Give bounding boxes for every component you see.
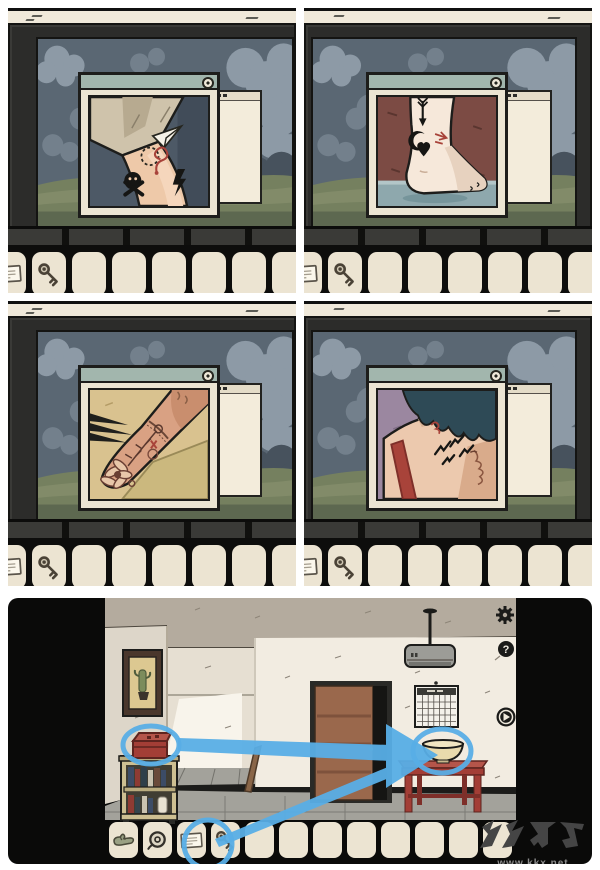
stacked-window[interactable] — [502, 383, 552, 497]
walkthrough-panel-2 — [304, 8, 592, 293]
window-close-button[interactable] — [202, 370, 214, 382]
window-sill — [304, 519, 592, 538]
inventory-slot-key[interactable] — [32, 252, 66, 293]
inventory-slot[interactable] — [272, 545, 296, 586]
key-icon — [332, 554, 358, 580]
inventory-slot[interactable] — [279, 822, 308, 858]
inventory-slot-key[interactable] — [32, 545, 66, 586]
key-icon — [36, 554, 62, 580]
inventory-slot[interactable] — [272, 252, 296, 293]
play-button[interactable] — [497, 708, 516, 727]
bookshelf[interactable] — [119, 756, 179, 824]
tattoo-photo-wrist — [88, 388, 210, 501]
kk-download-logo — [478, 817, 588, 853]
photo-window-titlebar[interactable] — [81, 75, 217, 90]
inventory-slot[interactable] — [408, 545, 442, 586]
inventory-slot[interactable] — [448, 252, 482, 293]
inventory-slot[interactable] — [448, 545, 482, 586]
inventory-slot-note[interactable] — [304, 545, 322, 586]
red-box[interactable] — [133, 733, 171, 758]
inventory-bar — [304, 245, 592, 293]
question-mark-icon: ? — [503, 644, 510, 656]
room-screenshot: ? — [8, 598, 592, 864]
inventory-bar — [8, 245, 296, 293]
inventory-slot[interactable] — [152, 545, 186, 586]
stacked-window[interactable] — [502, 90, 552, 204]
glove-icon — [112, 829, 135, 852]
inventory-slot[interactable] — [449, 822, 478, 858]
inventory-slot[interactable] — [313, 822, 342, 858]
inventory-slot[interactable] — [72, 252, 106, 293]
inventory-bar — [109, 822, 512, 858]
inventory-slot[interactable] — [488, 545, 522, 586]
key-icon — [36, 261, 62, 287]
window-close-button[interactable] — [202, 77, 214, 89]
game-viewport: ? — [105, 598, 516, 864]
inventory-slot[interactable] — [528, 545, 562, 586]
inventory-slot[interactable] — [347, 822, 376, 858]
photo-window[interactable] — [366, 72, 508, 218]
note-icon — [304, 261, 318, 287]
white-jug — [158, 797, 167, 813]
inventory-slot[interactable] — [368, 545, 402, 586]
inventory-slot-note[interactable] — [8, 252, 26, 293]
key-icon — [214, 829, 237, 852]
photo-window-titlebar[interactable] — [81, 368, 217, 383]
window-sill — [304, 226, 592, 245]
note-icon — [8, 554, 22, 580]
photo-window-titlebar[interactable] — [369, 75, 505, 90]
inventory-slot-glove[interactable] — [109, 822, 138, 858]
walkthrough-panel-4 — [304, 301, 592, 586]
inventory-slot[interactable] — [245, 822, 274, 858]
inventory-slot[interactable] — [232, 252, 266, 293]
inventory-bar — [8, 538, 296, 586]
watermark: www.kkx.net — [476, 817, 590, 864]
inventory-slot-tape[interactable] — [143, 822, 172, 858]
inventory-slot[interactable] — [368, 252, 402, 293]
tattoo-photo-back — [376, 388, 498, 501]
inventory-bar — [304, 538, 592, 586]
inventory-slot-note[interactable] — [8, 545, 26, 586]
inventory-slot-note[interactable] — [304, 252, 322, 293]
window-close-button[interactable] — [490, 77, 502, 89]
inventory-slot-note[interactable] — [177, 822, 206, 858]
inventory-slot[interactable] — [408, 252, 442, 293]
inventory-slot[interactable] — [488, 252, 522, 293]
inventory-slot[interactable] — [112, 545, 146, 586]
door[interactable] — [310, 681, 392, 803]
note-icon — [304, 554, 318, 580]
photo-window-titlebar[interactable] — [369, 368, 505, 383]
tape-icon — [146, 829, 169, 852]
inventory-slot[interactable] — [152, 252, 186, 293]
inventory-slot[interactable] — [381, 822, 410, 858]
inventory-slot-key[interactable] — [211, 822, 240, 858]
inventory-slot[interactable] — [72, 545, 106, 586]
window-close-button[interactable] — [490, 370, 502, 382]
inventory-slot[interactable] — [568, 545, 592, 586]
tattoo-photo-arm — [88, 95, 210, 208]
walkthrough-panel-1 — [8, 8, 296, 293]
calendar[interactable] — [415, 681, 458, 727]
inventory-slot-key[interactable] — [328, 252, 362, 293]
door-handle[interactable] — [369, 747, 373, 751]
inventory-slot[interactable] — [232, 545, 266, 586]
watermark-url: www.kkx.net — [476, 858, 590, 864]
inventory-slot-key[interactable] — [328, 545, 362, 586]
tattoo-photo-foot — [376, 95, 498, 208]
cactus — [139, 670, 146, 692]
inventory-slot[interactable] — [528, 252, 562, 293]
note-icon — [180, 829, 203, 852]
photo-window[interactable] — [78, 365, 220, 511]
settings-button[interactable] — [496, 606, 514, 624]
cactus-painting[interactable] — [123, 650, 162, 716]
inventory-slot[interactable] — [192, 252, 226, 293]
inventory-slot[interactable] — [415, 822, 444, 858]
window-sill — [8, 519, 296, 538]
window-sill — [8, 226, 296, 245]
inventory-slot[interactable] — [112, 252, 146, 293]
inventory-slot[interactable] — [192, 545, 226, 586]
note-icon — [8, 261, 22, 287]
photo-window[interactable] — [366, 365, 508, 511]
walkthrough-panel-3 — [8, 301, 296, 586]
inventory-slot[interactable] — [568, 252, 592, 293]
photo-window[interactable] — [78, 72, 220, 218]
key-icon — [332, 261, 358, 287]
